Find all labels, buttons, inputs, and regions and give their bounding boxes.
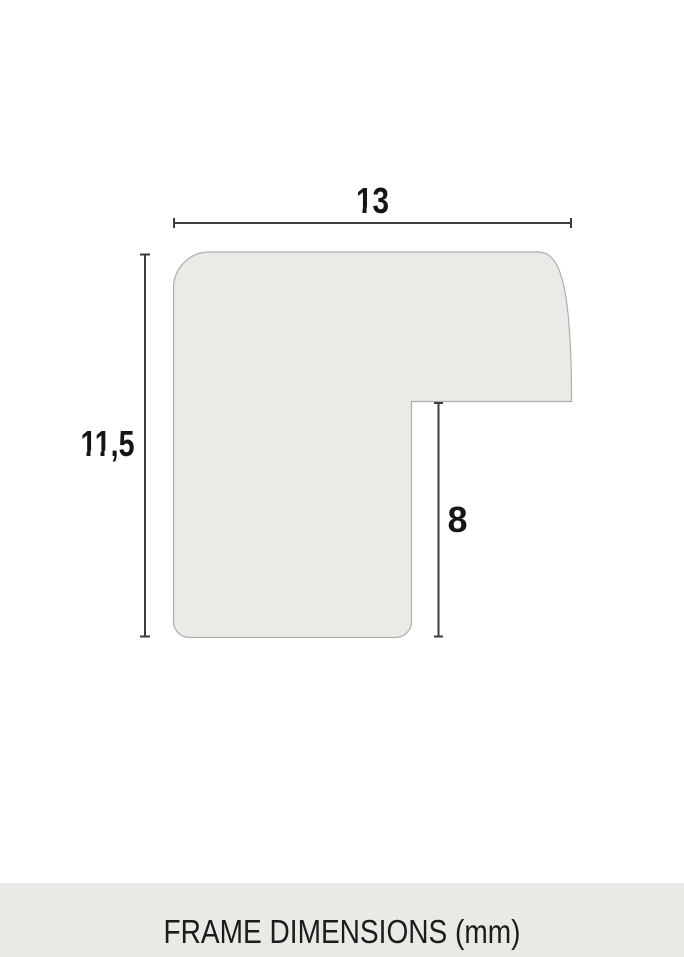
svg-text:FRAME DIMENSIONS (mm): FRAME DIMENSIONS (mm): [164, 913, 521, 950]
svg-text:13: 13: [356, 180, 389, 221]
svg-text:11,5: 11,5: [81, 423, 135, 464]
svg-text:8: 8: [447, 499, 467, 540]
